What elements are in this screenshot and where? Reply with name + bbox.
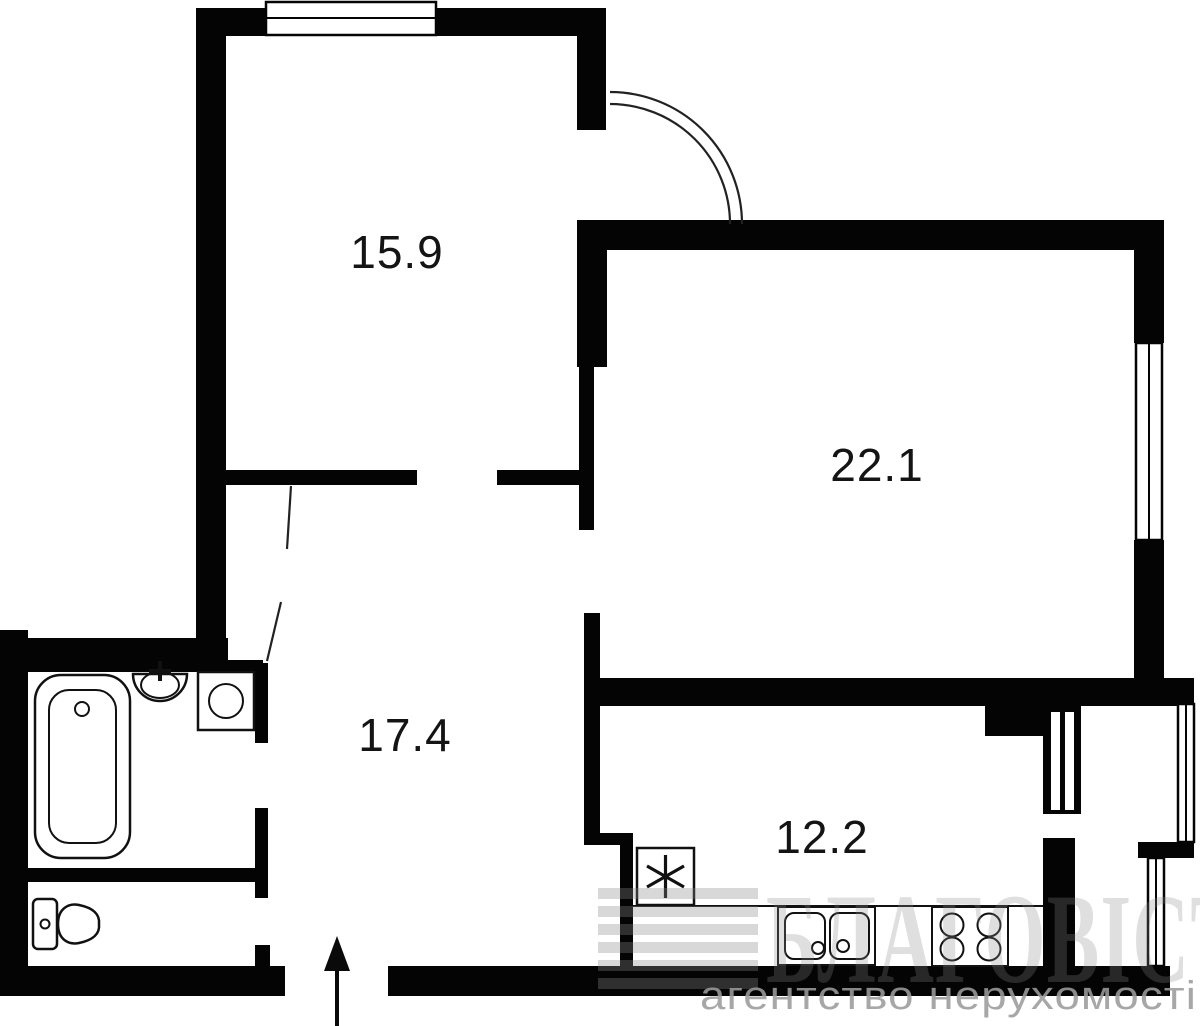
door-leaf-room1 bbox=[287, 486, 291, 549]
room-labels: 15.9 22.1 17.4 12.2 bbox=[350, 226, 924, 863]
wall-bath-top bbox=[6, 638, 228, 663]
wall-bottom-room2 bbox=[598, 678, 1194, 706]
door-swing-arc-outer bbox=[610, 92, 742, 224]
floor-plan-drawing: БЛАГОВІСТ агентство нерухомості 15.9 22.… bbox=[0, 0, 1200, 1026]
window-right-icon bbox=[1136, 343, 1162, 540]
window-kitchen-upper-icon bbox=[1178, 704, 1194, 842]
door-leaf-bathroom bbox=[267, 602, 281, 661]
room-label-22-1: 22.1 bbox=[830, 439, 924, 491]
wall-kitchen-right-stub bbox=[1138, 842, 1194, 858]
vent-shaft-upper bbox=[1043, 706, 1081, 814]
wall-hallway-kitchen bbox=[584, 680, 600, 845]
washing-machine-icon bbox=[198, 672, 254, 730]
wall-bottom-room1-right bbox=[497, 470, 582, 485]
vent-shaft-stripe bbox=[1051, 712, 1060, 810]
window-top-icon bbox=[266, 2, 436, 35]
wall-bath-wc-divider bbox=[10, 868, 268, 882]
watermark-subtitle-text: агентство нерухомості bbox=[700, 974, 1197, 1018]
floor-plan-page: БЛАГОВІСТ агентство нерухомості 15.9 22.… bbox=[0, 0, 1200, 1026]
wall-left-room2-thin bbox=[579, 367, 594, 530]
wall-bottom-room1-left bbox=[220, 470, 417, 485]
wall-exterior-left bbox=[0, 630, 28, 996]
doors bbox=[267, 92, 742, 661]
vent-shaft-stripe bbox=[1065, 712, 1074, 810]
room-label-17-4: 17.4 bbox=[358, 709, 452, 761]
wall-bath-right-upper bbox=[255, 663, 268, 743]
room-label-12-2: 12.2 bbox=[775, 811, 869, 863]
wall-left-room1 bbox=[196, 8, 226, 660]
bathtub-icon bbox=[35, 675, 130, 858]
wall-right-room2-upper bbox=[1134, 220, 1164, 343]
room-label-15-9: 15.9 bbox=[350, 226, 444, 278]
wall-divider-stub bbox=[255, 868, 268, 898]
wall-right-room2-lower bbox=[1134, 540, 1164, 702]
toilet-icon bbox=[33, 899, 99, 949]
walls bbox=[0, 8, 1194, 996]
wall-bath-lintel bbox=[6, 660, 263, 672]
wall-left-room2-lower bbox=[584, 613, 600, 680]
wall-bottom-left bbox=[0, 966, 285, 996]
wall-left-room2-thick bbox=[577, 220, 607, 367]
wall-bath-right-mid bbox=[255, 808, 268, 870]
wall-kitchen-jog bbox=[584, 833, 633, 845]
entrance-arrow-icon bbox=[324, 936, 350, 1026]
wall-right-room1 bbox=[577, 8, 606, 130]
wall-top-room2 bbox=[598, 220, 1164, 250]
door-swing-arc-inner bbox=[610, 104, 730, 224]
